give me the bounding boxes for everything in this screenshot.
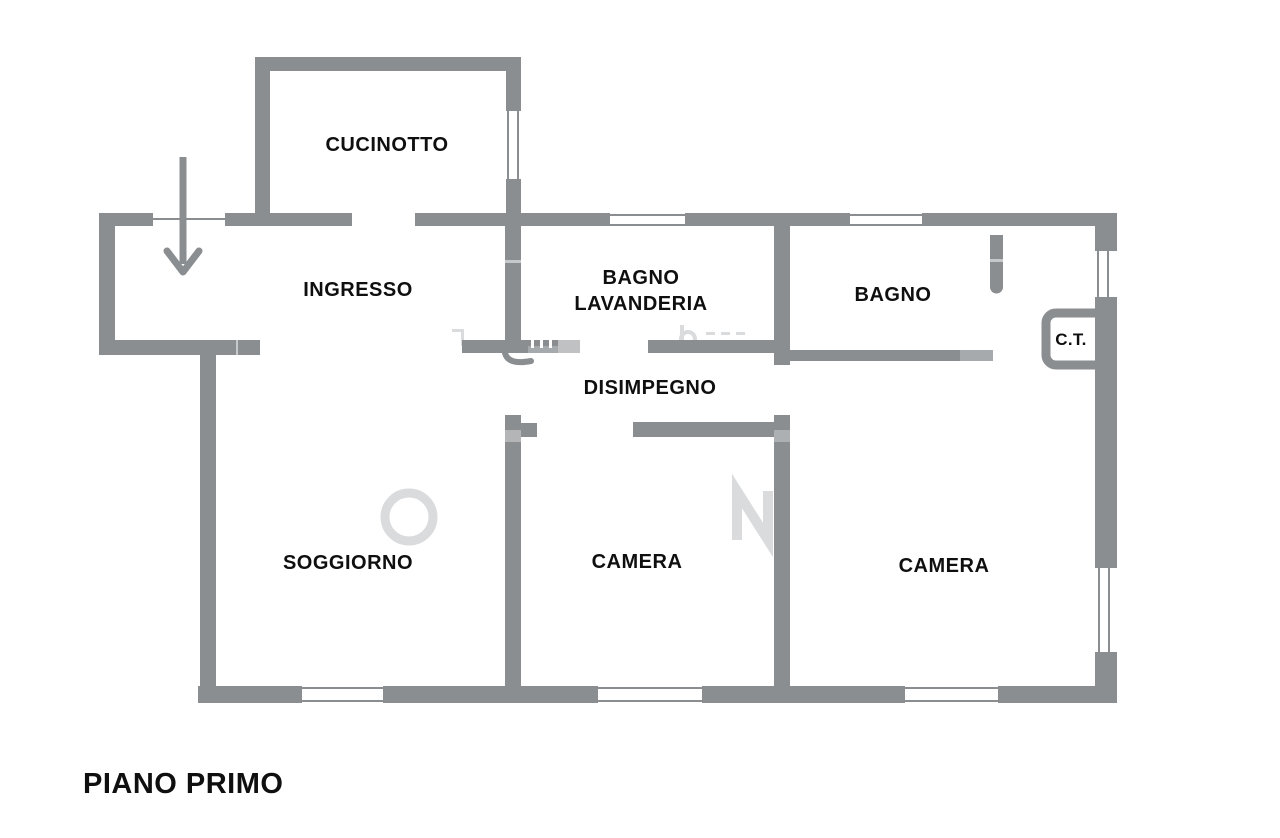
wall-right-upper: [1095, 213, 1117, 251]
window-top-1: [610, 214, 685, 216]
window-bottom-3: [905, 687, 998, 689]
wall-cucinotto-right-upper: [506, 57, 521, 111]
wall-ingresso-bagnolav-divider: [505, 226, 521, 353]
label-disimpegno: DISIMPEGNO: [584, 377, 717, 399]
wall-top-b: [225, 213, 352, 226]
wall-top-d: [685, 213, 850, 226]
watermark-letter-n: [737, 491, 768, 540]
wall-bottom-d: [998, 686, 1117, 703]
wall-bottom-b: [383, 686, 598, 703]
wall-camera1-top: [633, 422, 774, 437]
wall-cucinotto-left: [255, 57, 270, 226]
window-cucinotto: [507, 111, 509, 179]
windows: [302, 111, 1110, 702]
wall-cucinotto-top: [255, 57, 521, 71]
window-bottom-1: [302, 687, 383, 689]
watermark-letter-o: [385, 493, 433, 541]
wall-soggiorno-left: [200, 353, 216, 703]
witness-line-stub: [990, 259, 1003, 262]
witness-line-divider: [505, 260, 521, 263]
window-right-2b: [1108, 568, 1110, 652]
label-cucinotto: CUCINOTTO: [325, 134, 448, 156]
window-top-2b: [850, 224, 922, 226]
label-bagno-lavanderia-line2: LAVANDERIA: [574, 293, 707, 315]
window-cucinotto-b: [517, 111, 519, 179]
wall-top-e: [922, 213, 1117, 226]
window-right-1b: [1107, 251, 1109, 297]
label-ct: C.T.: [1055, 330, 1086, 349]
window-right-1: [1097, 251, 1099, 297]
window-bottom-2: [598, 687, 702, 689]
wall-camera1-left: [505, 415, 521, 703]
corridor-door-arc: [505, 353, 531, 362]
window-top-1b: [610, 224, 685, 226]
window-bottom-2b: [598, 700, 702, 702]
wall-camera-divider: [774, 415, 790, 703]
window-bottom-3b: [905, 700, 998, 702]
wall-bottom-c: [702, 686, 905, 703]
floor-title: PIANO PRIMO: [83, 768, 283, 800]
floorplan-page: CUCINOTTO INGRESSO BAGNO LAVANDERIA BAGN…: [0, 0, 1280, 838]
wall-top-c: [415, 213, 610, 226]
wall-camera1-door-stub: [521, 423, 537, 437]
label-camera-1: CAMERA: [592, 551, 683, 573]
wall-entry-bottom: [99, 340, 260, 355]
wall-bagno-stub-end: [990, 281, 1003, 294]
window-right-2: [1098, 568, 1100, 652]
wall-entry-left: [99, 213, 115, 355]
witness-line-entry: [236, 340, 238, 355]
window-bottom-1b: [302, 700, 383, 702]
wall-corridor-top-mid: [648, 340, 774, 353]
wall-right-over-ct: [1095, 297, 1117, 372]
wall-bagno-divider: [774, 226, 790, 365]
wall-top-a: [99, 213, 153, 226]
label-ingresso: INGRESSO: [303, 279, 413, 301]
label-camera-2: CAMERA: [899, 555, 990, 577]
floorplan-drawing: CUCINOTTO INGRESSO BAGNO LAVANDERIA BAGN…: [0, 0, 1280, 838]
entrance-door-line: [153, 218, 225, 220]
label-bagno-lavanderia-line1: BAGNO: [603, 267, 680, 289]
label-soggiorno: SOGGIORNO: [283, 552, 413, 574]
window-top-2: [850, 214, 922, 216]
label-bagno: BAGNO: [855, 284, 932, 306]
